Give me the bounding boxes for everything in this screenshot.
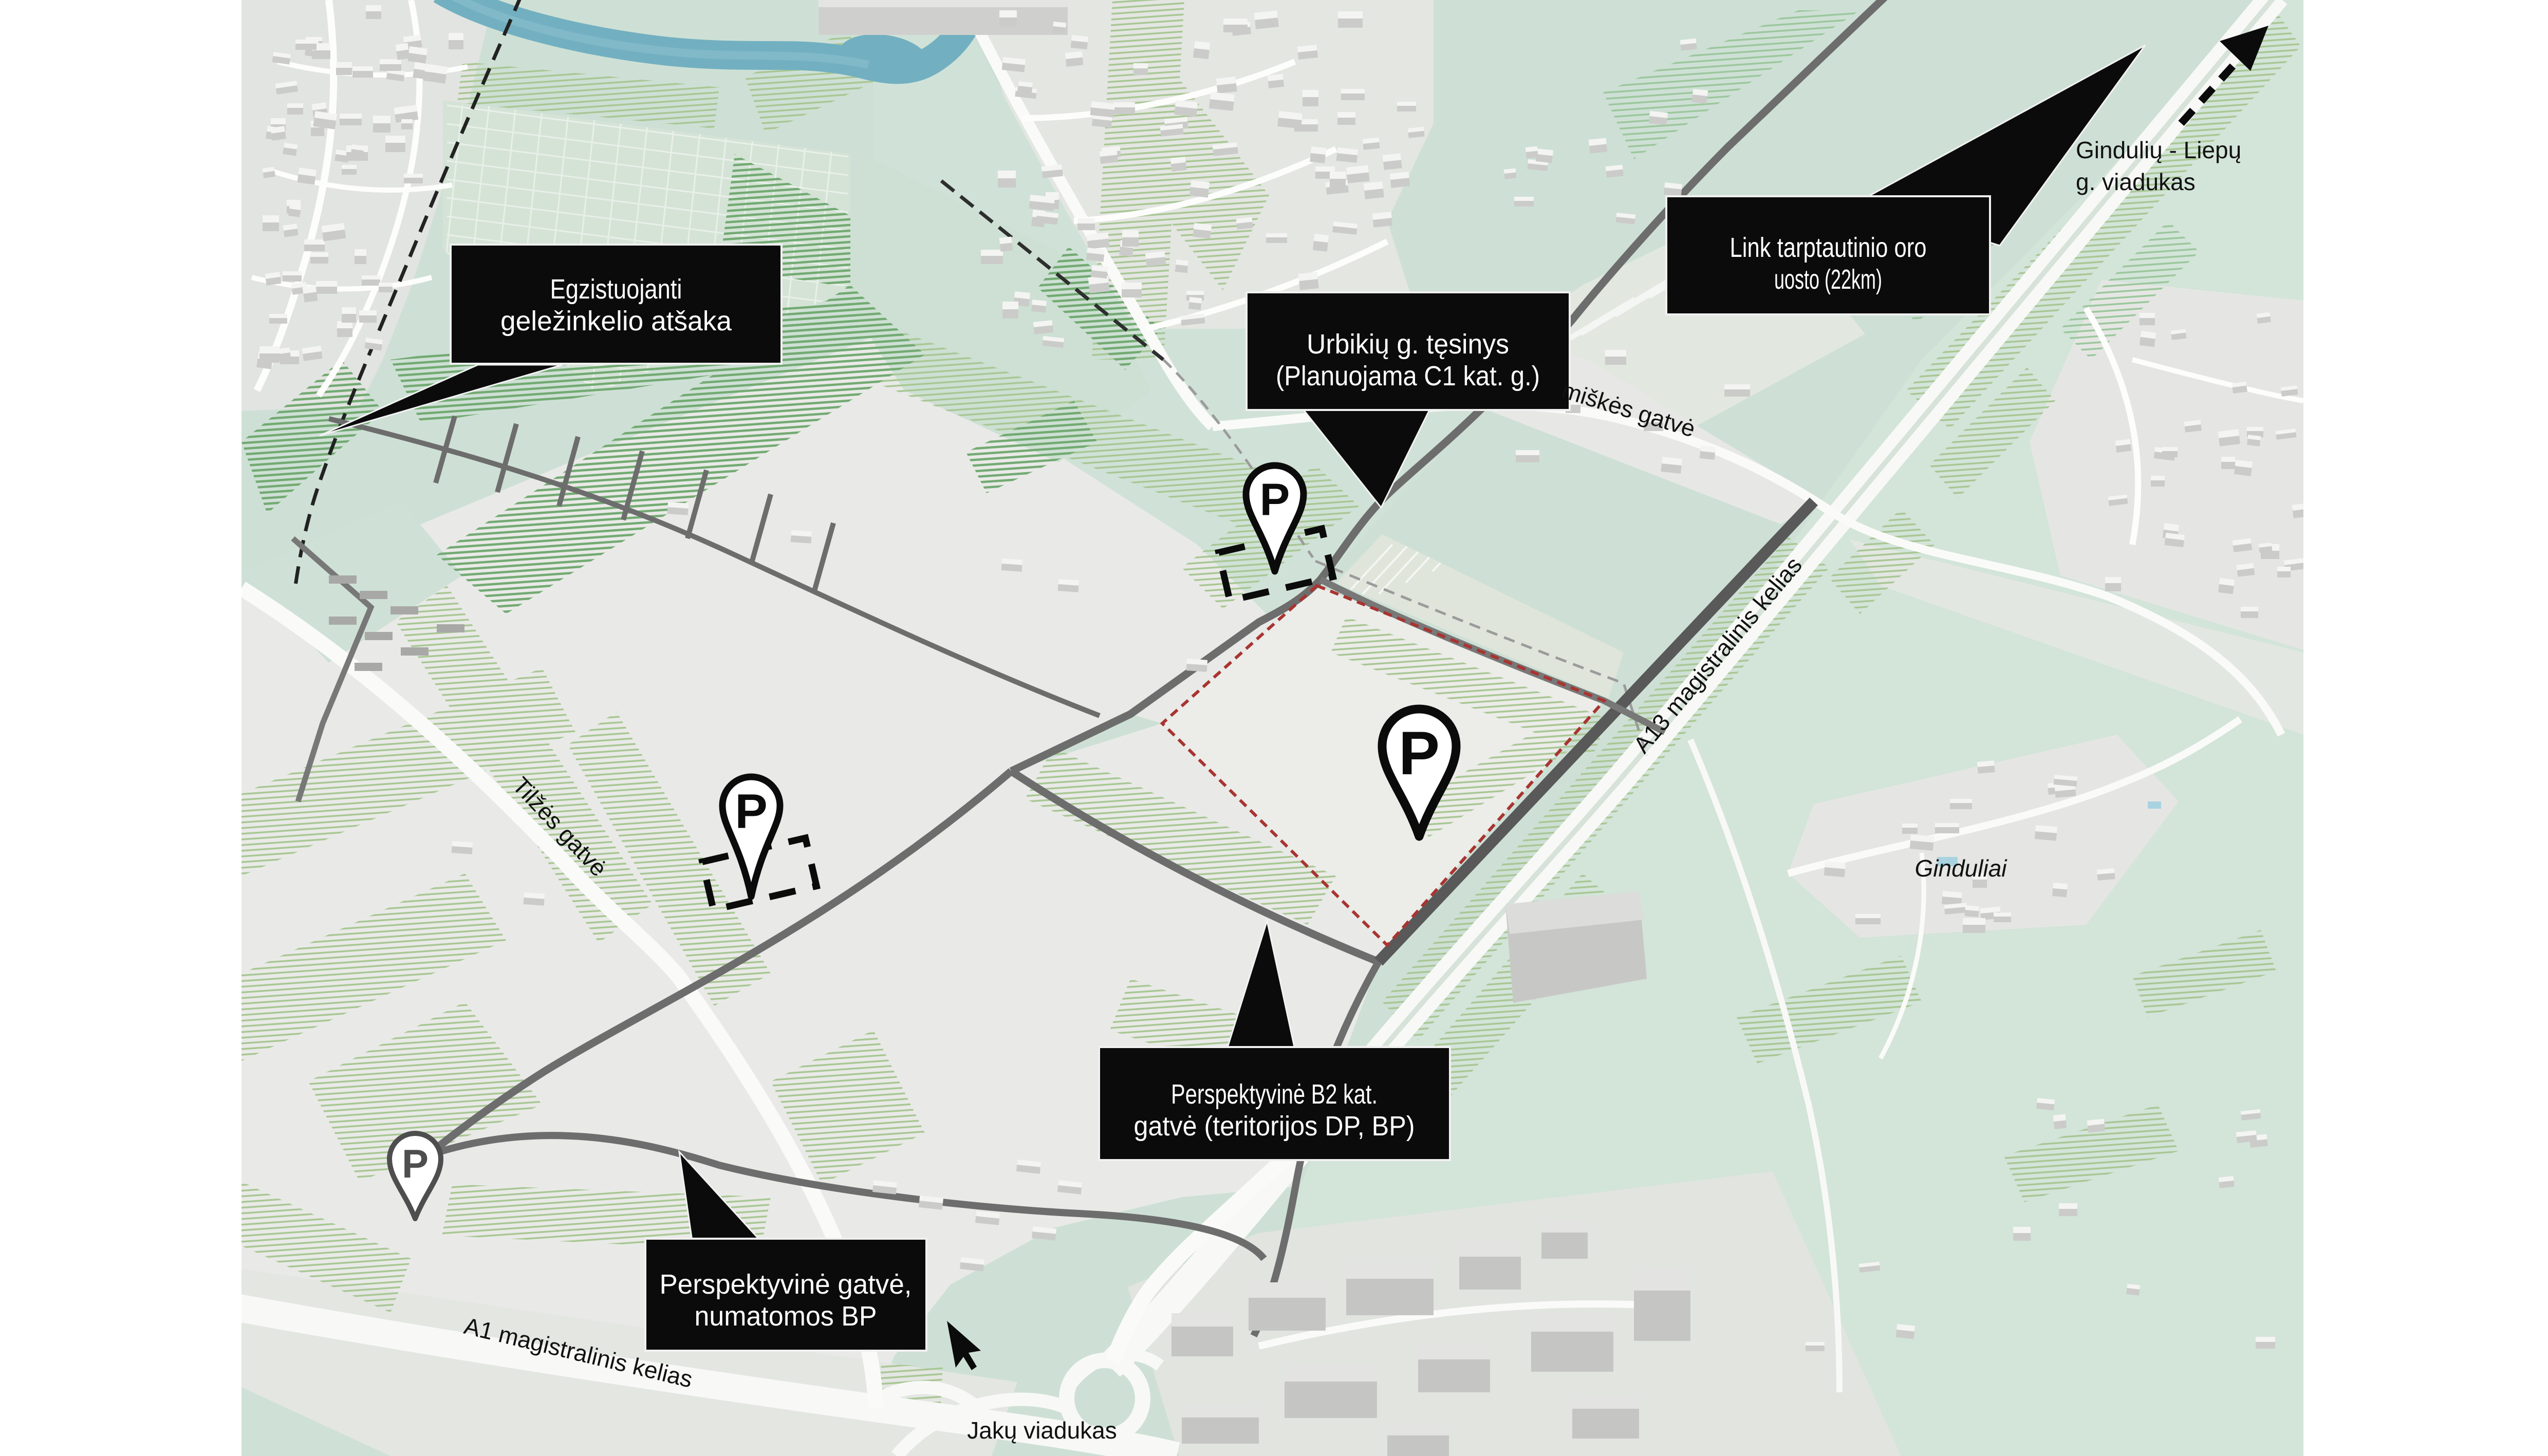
svg-text:Ginduliai: Ginduliai [1915,855,2008,882]
svg-text:Perspektyvinė B2 kat.: Perspektyvinė B2 kat. [1171,1079,1378,1110]
svg-text:Link tarptautinio oro: Link tarptautinio oro [1730,232,1927,263]
svg-text:Egzistuojanti: Egzistuojanti [550,274,682,305]
svg-text:geležinkelio atšaka: geležinkelio atšaka [500,306,732,337]
svg-text:Jakų viadukas: Jakų viadukas [967,1417,1117,1444]
svg-text:gatvė (teritorijos DP, BP): gatvė (teritorijos DP, BP) [1134,1111,1415,1142]
svg-text:uosto (22km): uosto (22km) [1774,264,1882,295]
svg-text:(Planuojama C1 kat. g.): (Planuojama C1 kat. g.) [1276,361,1540,391]
svg-text:numatomos BP: numatomos BP [695,1301,877,1332]
svg-text:P: P [1399,719,1440,788]
svg-text:P: P [735,785,767,839]
svg-text:P: P [1260,474,1290,525]
svg-text:P: P [402,1141,429,1186]
svg-text:Perspektyvinė gatvė,: Perspektyvinė gatvė, [660,1269,912,1300]
svg-text:g. viadukas: g. viadukas [2076,169,2196,195]
svg-text:Gindulių - Liepų: Gindulių - Liepų [2076,137,2241,163]
svg-text:Urbikių g. tęsinys: Urbikių g. tęsinys [1307,329,1509,360]
